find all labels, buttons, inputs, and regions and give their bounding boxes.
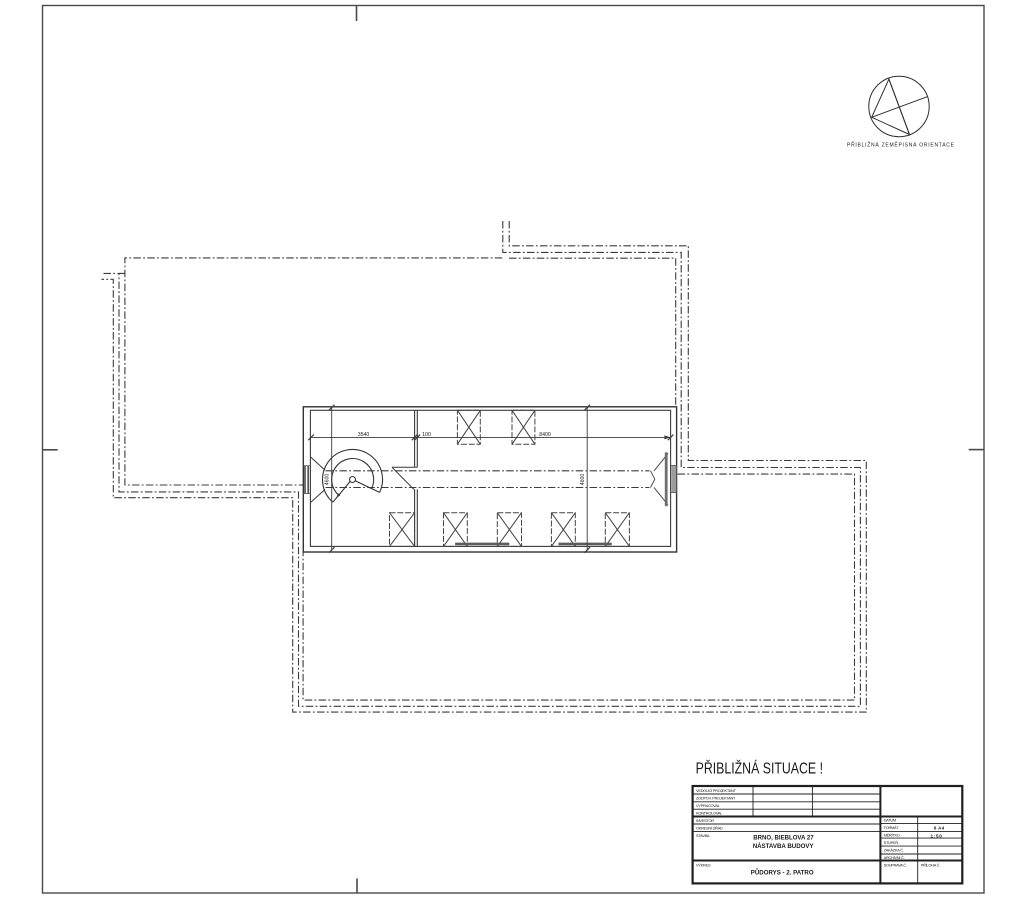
svg-text:VYPRACOVAL: VYPRACOVAL — [696, 803, 721, 808]
svg-text:PŘIBLIŽNÁ SITUACE !: PŘIBLIŽNÁ SITUACE ! — [696, 759, 823, 778]
svg-text:OKRESNÍ ÚŘAD: OKRESNÍ ÚŘAD — [696, 825, 723, 830]
svg-text:ZAKÁZKA Č.: ZAKÁZKA Č. — [884, 848, 904, 853]
svg-text:4600: 4600 — [580, 474, 586, 486]
svg-text:STAVBA: STAVBA — [696, 833, 710, 838]
svg-text:FORMÁT: FORMÁT — [884, 825, 900, 830]
svg-text:PŘIBLIŽNÁ ZEMĚPISNÁ ORIENTACE: PŘIBLIŽNÁ ZEMĚPISNÁ ORIENTACE — [847, 141, 955, 149]
svg-text:SOUPRAVA Č.: SOUPRAVA Č. — [884, 862, 907, 867]
svg-text:NÁSTAVBA BUDOVY: NÁSTAVBA BUDOVY — [753, 843, 815, 850]
svg-text:4600: 4600 — [325, 474, 331, 486]
svg-text:6 A4: 6 A4 — [934, 825, 945, 830]
svg-text:DATUM: DATUM — [884, 818, 896, 823]
svg-text:1:50: 1:50 — [931, 833, 943, 838]
svg-text:8400: 8400 — [539, 432, 551, 438]
svg-text:PŮDORYS - 2. PATRO: PŮDORYS - 2. PATRO — [751, 869, 814, 877]
svg-text:ARCHIVNÍ Č.: ARCHIVNÍ Č. — [884, 855, 905, 860]
svg-text:ZODPOV. PROJEKTANT: ZODPOV. PROJEKTANT — [696, 796, 736, 801]
svg-text:VEDOUCÍ PROJEKTANT: VEDOUCÍ PROJEKTANT — [696, 788, 737, 793]
svg-text:BRNO, BIEBLOVA 27: BRNO, BIEBLOVA 27 — [753, 835, 814, 842]
svg-text:MĚŘÍTKO: MĚŘÍTKO — [884, 832, 900, 837]
svg-text:KONTROLOVAL: KONTROLOVAL — [696, 810, 723, 815]
svg-text:100: 100 — [422, 432, 431, 438]
svg-text:PŘÍLOHA Č.: PŘÍLOHA Č. — [921, 862, 941, 867]
svg-text:INVESTOR: INVESTOR — [696, 818, 714, 823]
svg-text:VÝKRES: VÝKRES — [696, 862, 711, 867]
svg-text:3540: 3540 — [358, 432, 370, 438]
svg-text:STUPEŇ: STUPEŇ — [884, 840, 899, 845]
